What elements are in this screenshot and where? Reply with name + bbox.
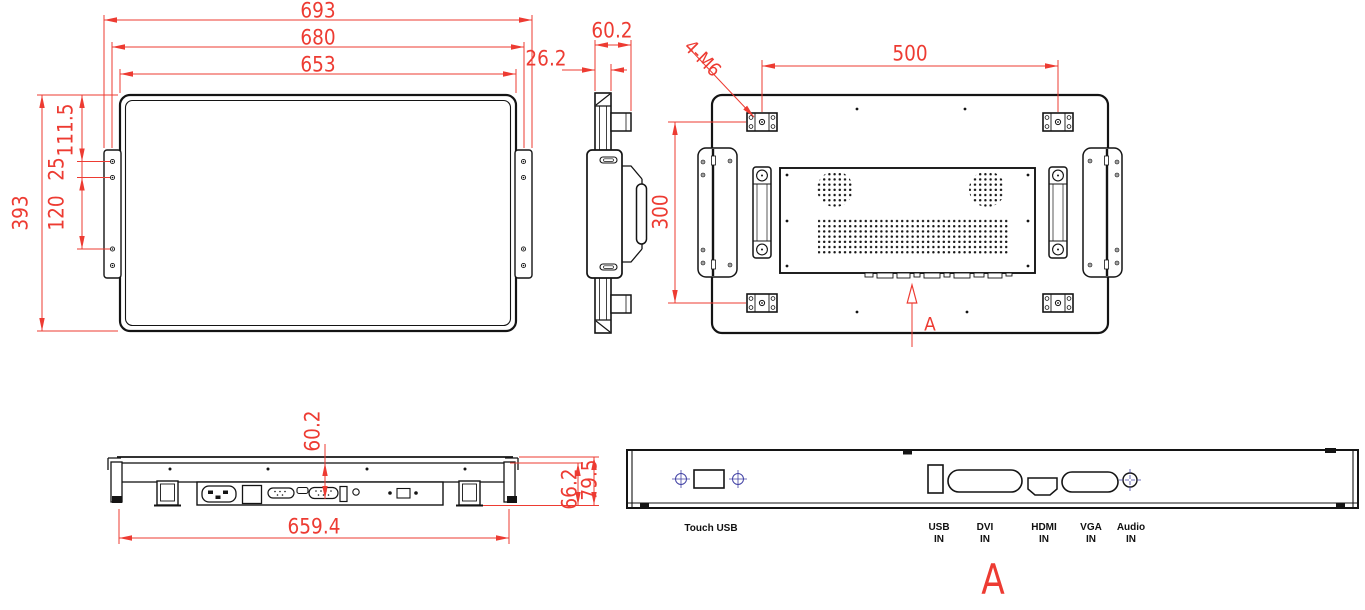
dvi-in-port xyxy=(948,470,1022,492)
section-label-back: A xyxy=(924,316,936,335)
usb-in-port xyxy=(928,465,943,493)
back-handle-right xyxy=(1049,167,1067,258)
clamp-left xyxy=(154,481,181,506)
label-vga-in-2: IN xyxy=(1086,535,1096,545)
label-usb-in-1: USB xyxy=(928,523,949,533)
front-bracket-left xyxy=(104,150,121,278)
monitor-dimension-drawing xyxy=(0,0,1365,610)
label-dvi-in-2: IN xyxy=(980,535,990,545)
back-bracket-left xyxy=(698,148,737,277)
label-hdmi-in-2: IN xyxy=(1039,535,1049,545)
dim-width-panel: 653 xyxy=(300,55,335,76)
hdmi-in-port xyxy=(1028,478,1057,495)
electronics-box xyxy=(780,168,1035,278)
dim-vesa-width: 500 xyxy=(892,44,927,65)
vga-in-port xyxy=(1062,472,1118,492)
technical-drawing-canvas: 693 680 653 393 111.5 25 120 26.2 60.2 5… xyxy=(0,0,1365,610)
touch-usb-port xyxy=(694,470,724,488)
label-vga-in-1: VGA xyxy=(1080,523,1102,533)
connector-recess xyxy=(197,482,443,505)
screw-crosshair-right xyxy=(729,470,747,488)
speaker-grille-left xyxy=(817,171,853,207)
dim-height-outer: 79.5 xyxy=(580,459,601,500)
screw-crosshair-left xyxy=(672,470,690,488)
label-audio-in-1: Audio xyxy=(1117,523,1145,533)
audio-in-port xyxy=(1119,469,1141,491)
dim-height: 393 xyxy=(11,195,32,230)
dim-vesa-height: 300 xyxy=(651,194,672,229)
dim-total-depth: 60.2 xyxy=(591,21,632,42)
label-audio-in-2: IN xyxy=(1126,535,1136,545)
clamp-right xyxy=(456,481,483,506)
label-touch-usb: Touch USB xyxy=(684,524,737,534)
label-dvi-in-1: DVI xyxy=(977,523,994,533)
section-arrow-a xyxy=(907,285,917,347)
detail-view-a xyxy=(627,448,1358,508)
dim-panel-depth: 26.2 xyxy=(525,49,566,70)
label-hdmi-in-1: HDMI xyxy=(1031,523,1057,533)
dim-width-bezel: 680 xyxy=(300,28,335,49)
dim-hole-span: 120 xyxy=(47,195,68,230)
vent-holes xyxy=(818,218,1008,254)
dim-bottom-width: 659.4 xyxy=(288,517,341,538)
back-bracket-right xyxy=(1083,148,1122,277)
section-label-detail: A xyxy=(981,559,1005,601)
speaker-grille-right xyxy=(969,171,1005,207)
back-view xyxy=(698,95,1122,333)
bottom-view xyxy=(108,457,518,506)
back-handle-left xyxy=(753,167,771,258)
dim-top-to-hole: 111.5 xyxy=(56,104,77,157)
side-view xyxy=(587,93,647,333)
dim-width-overall: 693 xyxy=(300,1,335,22)
front-view xyxy=(104,95,532,331)
front-bracket-right xyxy=(515,150,532,278)
side-view-dimensions xyxy=(562,40,631,111)
dim-bottom-depth: 60.2 xyxy=(303,410,324,451)
label-usb-in-2: IN xyxy=(934,535,944,545)
dim-hole-pair: 25 xyxy=(47,157,68,181)
